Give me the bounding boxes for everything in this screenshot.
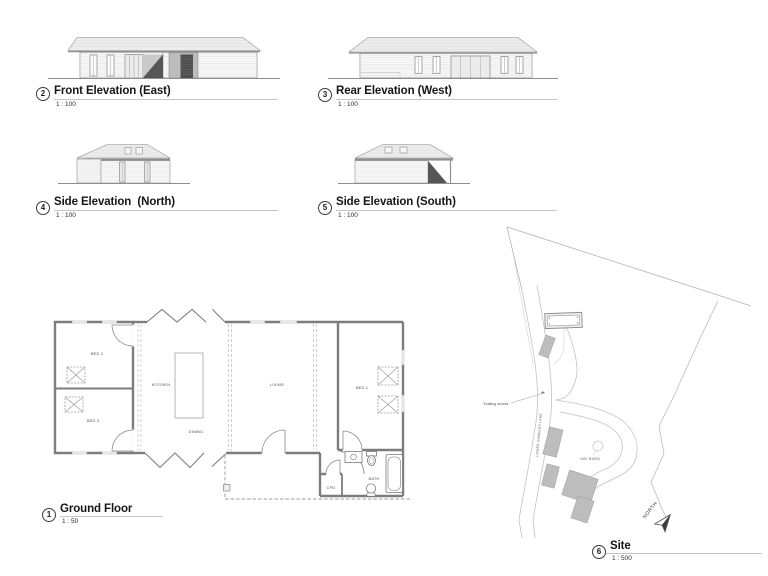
hay-barn-leader: [593, 450, 597, 455]
ground-floor-scale: 1 : 50: [62, 518, 78, 525]
door-openings: [132, 325, 362, 455]
entrance-door: [169, 53, 198, 78]
room-label-kitchen: KITCHEN: [152, 382, 171, 387]
room-label-bed3: BED 3: [87, 418, 100, 423]
patio-outline: [224, 455, 410, 499]
roof: [349, 38, 537, 54]
proposed-building-footprint: [545, 312, 583, 328]
site-number-badge: 6: [592, 545, 606, 559]
rear-elevation-title: Rear Elevation (West): [336, 85, 452, 97]
side-elevation-south-number-badge: 5: [318, 201, 332, 215]
side-elevation-north-drawing: [55, 138, 195, 188]
porch-shading: [428, 161, 451, 183]
front-elevation-drawing: [48, 33, 283, 83]
site-title: Site: [610, 540, 631, 552]
roof: [355, 145, 453, 161]
side-elevation-north-scale: 1 : 100: [56, 212, 76, 219]
roof: [68, 38, 260, 52]
front-elevation-scale: 1 : 100: [56, 101, 76, 108]
room-label-cpd: CPD: [327, 485, 336, 490]
room-label-dining: DINING: [189, 429, 204, 434]
room-labels: BED 2 BED 3 KITCHEN DINING LIVING BED 1 …: [87, 351, 380, 490]
front-elevation-title: Front Elevation (East): [54, 85, 171, 97]
rear-elevation-scale: 1 : 100: [338, 101, 358, 108]
door-swings: [112, 325, 364, 474]
walls: [80, 52, 257, 78]
existing-access-label: Existing access: [484, 402, 509, 406]
room-label-bed2: BED 2: [91, 351, 104, 356]
existing-buildings: [539, 335, 599, 523]
side-elevation-north-number-badge: 4: [36, 201, 50, 215]
walls: [355, 161, 428, 183]
ground-floor-title: Ground Floor: [60, 503, 132, 515]
side-elevation-south-drawing: [330, 138, 475, 188]
site-plan-drawing: HAY BARN Existing access LOWER GAMBLES L…: [460, 222, 765, 562]
hay-barn-label: HAY BARN: [580, 457, 600, 461]
bathroom-fixtures: [345, 452, 403, 497]
existing-access-annotation: Existing access: [484, 391, 545, 406]
side-elevation-north-title: Side Elevation (North): [54, 196, 175, 208]
north-arrow-icon: [655, 511, 676, 532]
north-label: NORTH: [642, 501, 659, 521]
ground-floor-number-badge: 1: [42, 508, 56, 522]
side-elevation-south-underline: [336, 210, 557, 211]
room-label-bath: BATH: [369, 476, 380, 481]
side-elevation-south-title: Side Elevation (South): [336, 196, 456, 208]
front-elevation-underline: [54, 99, 278, 100]
rear-elevation-number-badge: 3: [318, 88, 332, 102]
front-elevation-number-badge: 2: [36, 87, 50, 101]
rear-elevation-drawing: [328, 33, 563, 83]
kitchen-island: [175, 353, 203, 418]
glazed-doors: [451, 56, 490, 78]
fascia: [355, 158, 453, 160]
well-circle: [593, 441, 603, 451]
drawing-sheet: BED 2 BED 3 KITCHEN DINING LIVING BED 1 …: [0, 0, 768, 576]
side-elevation-north-underline: [54, 210, 278, 211]
rear-elevation-underline: [336, 99, 557, 100]
room-label-living: LIVING: [270, 382, 284, 387]
walls: [55, 322, 403, 496]
porch-shading: [143, 55, 163, 79]
side-elevation-south-scale: 1 : 100: [338, 212, 358, 219]
site-scale: 1 : 500: [612, 555, 632, 562]
roof-line-dashes: [138, 324, 317, 451]
ground-floor-plan-drawing: BED 2 BED 3 KITCHEN DINING LIVING BED 1 …: [45, 308, 420, 508]
room-label-bed1: BED 1: [356, 385, 369, 390]
